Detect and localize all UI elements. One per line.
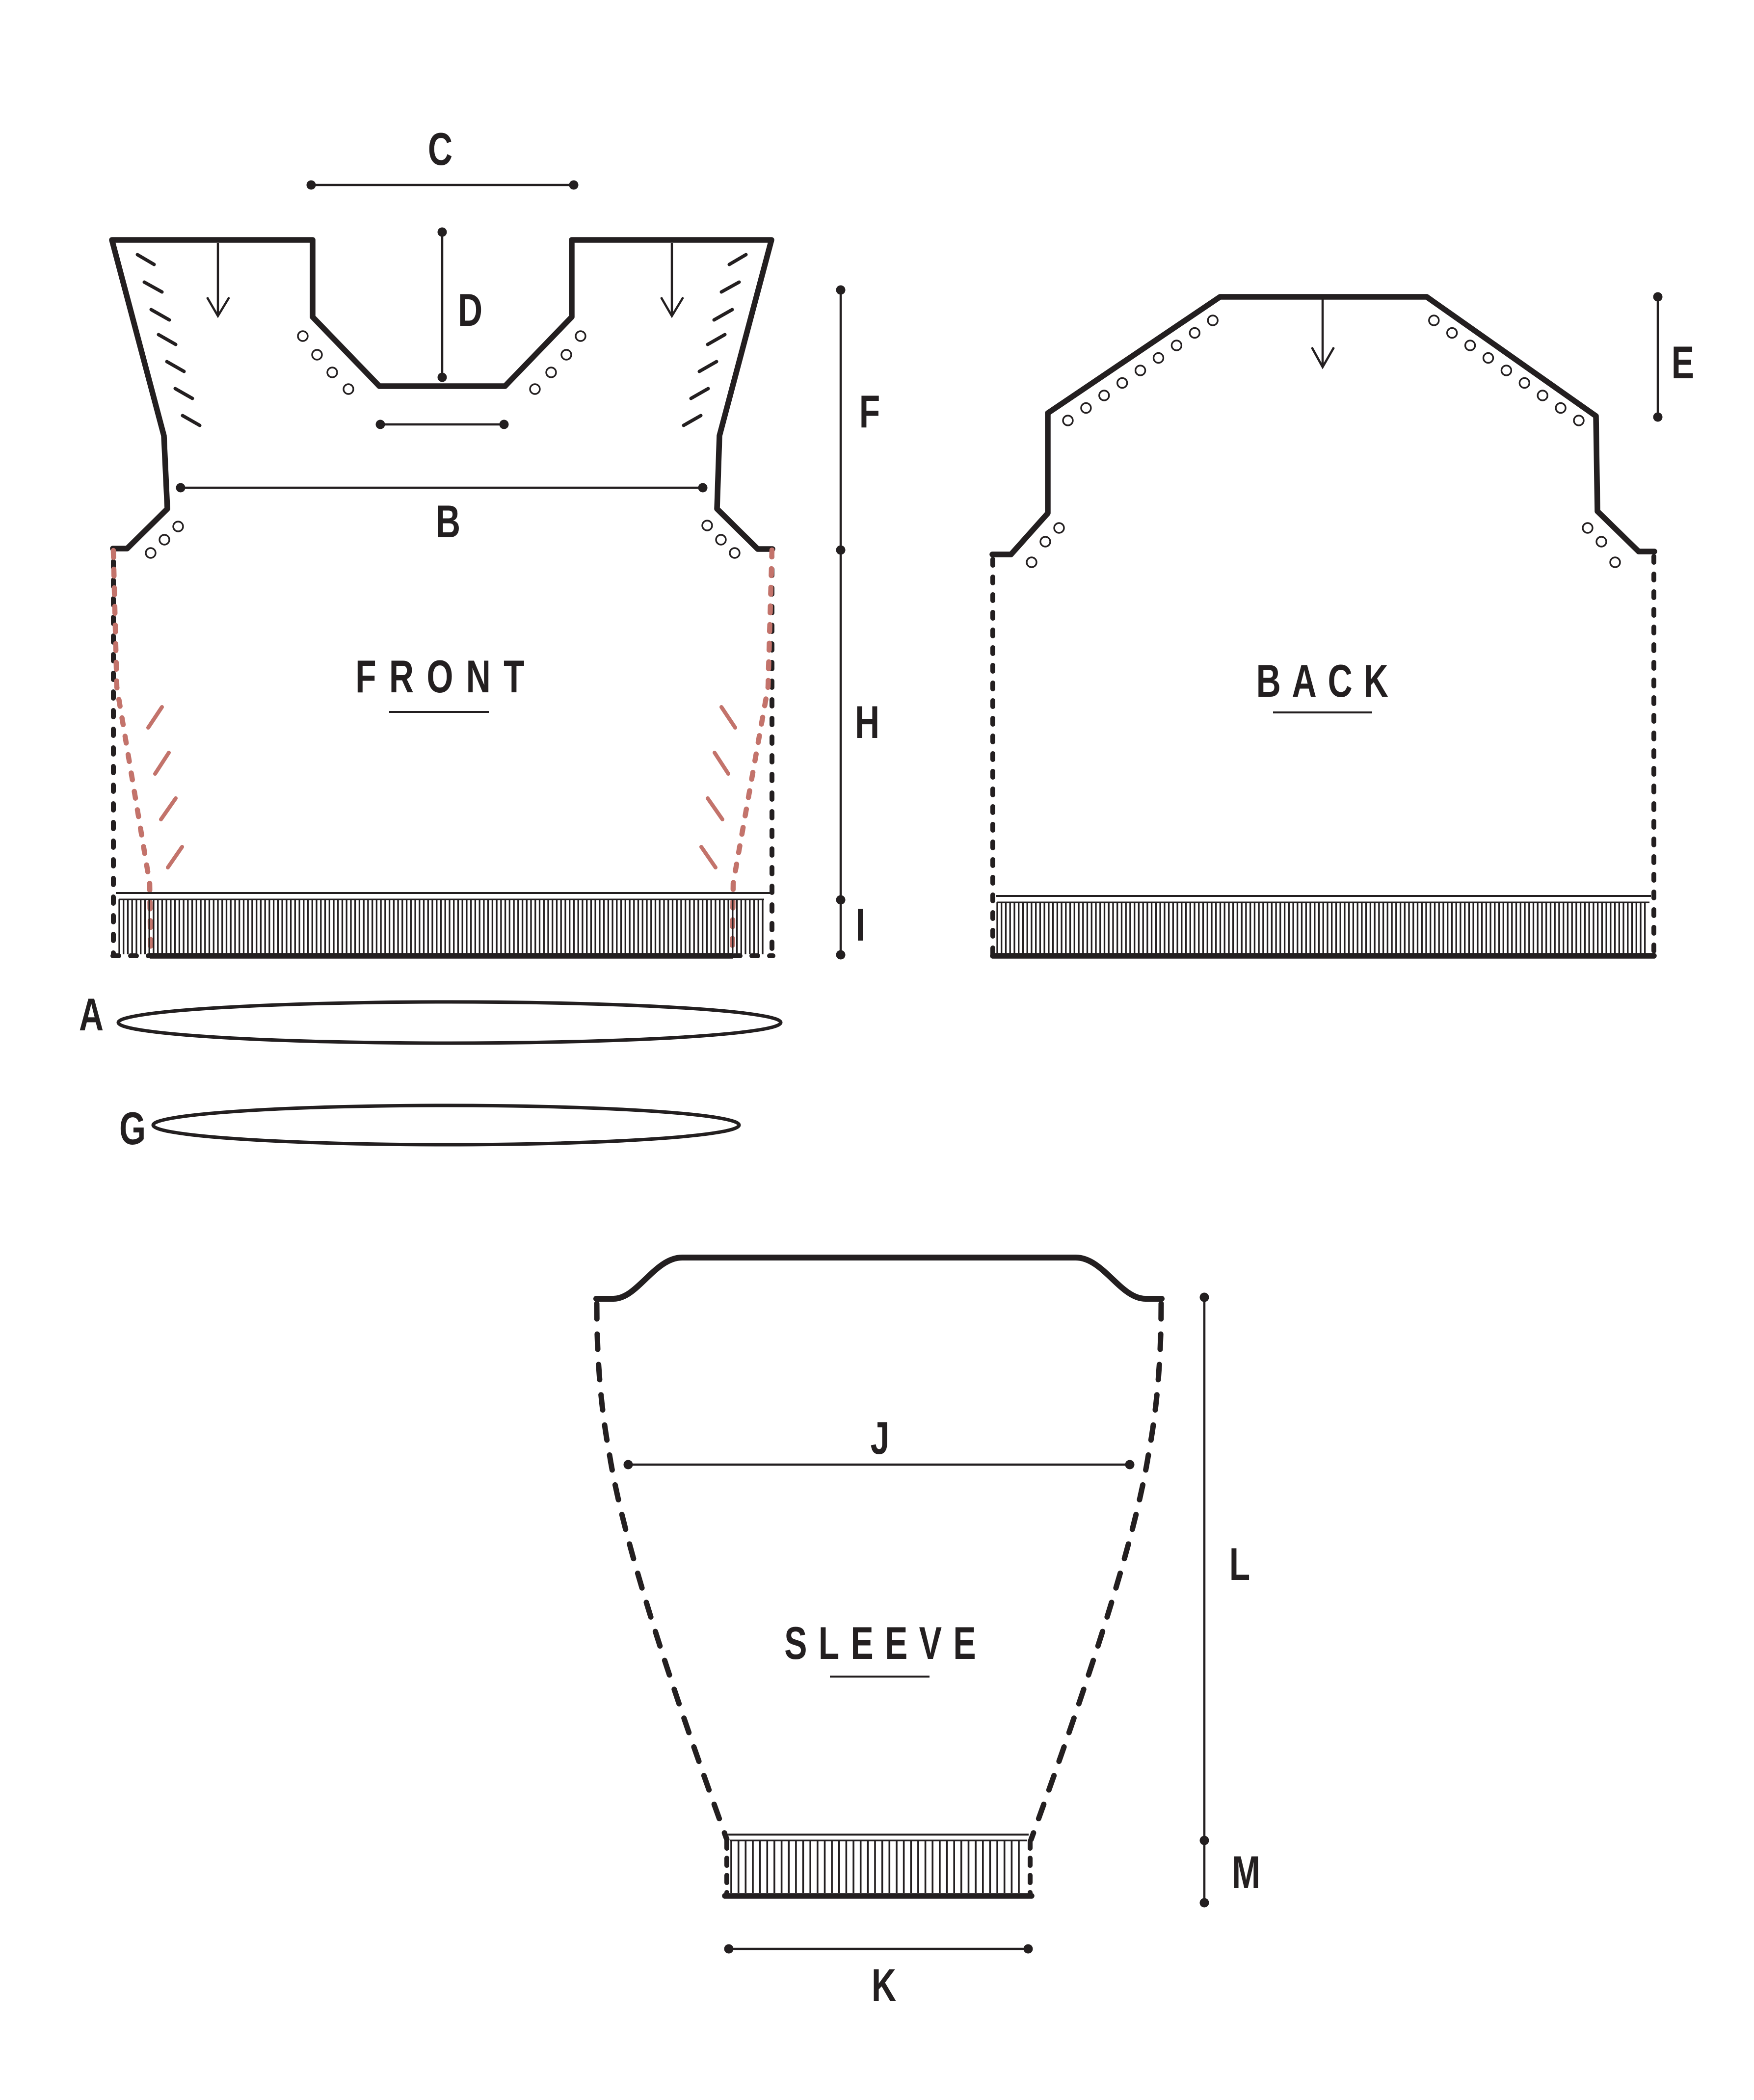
svg-text:F: F	[859, 386, 880, 438]
svg-text:H: H	[855, 696, 879, 748]
svg-text:B: B	[436, 496, 460, 548]
svg-text:BACK: BACK	[1256, 655, 1400, 707]
svg-text:E: E	[1672, 337, 1694, 389]
svg-text:D: D	[458, 284, 482, 336]
svg-text:L: L	[1229, 1538, 1250, 1590]
svg-text:A: A	[79, 989, 104, 1041]
svg-text:SLEEVE: SLEEVE	[784, 1617, 987, 1669]
svg-text:G: G	[119, 1102, 146, 1155]
svg-text:J: J	[871, 1412, 890, 1464]
svg-text:FRONT: FRONT	[355, 651, 537, 703]
svg-text:I: I	[855, 899, 865, 951]
svg-text:C: C	[428, 123, 452, 175]
svg-text:K: K	[872, 1959, 896, 2011]
svg-text:M: M	[1232, 1846, 1260, 1898]
